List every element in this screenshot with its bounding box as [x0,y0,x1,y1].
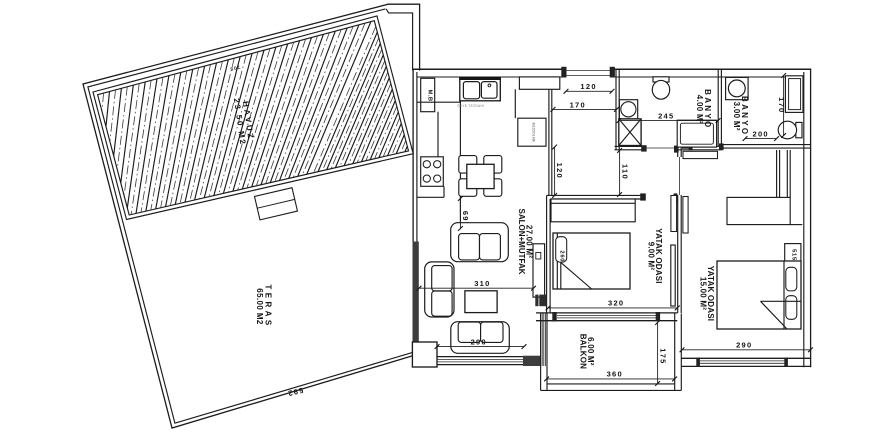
svg-text:EVYE TEZGAHI: EVYE TEZGAHI [458,104,485,108]
svg-text:M.B: M.B [427,90,433,102]
svg-text:200: 200 [752,129,768,138]
svg-text:175: 175 [658,348,667,364]
svg-text:SALON+MUTFAK: SALON+MUTFAK [517,209,526,275]
svg-text:260: 260 [558,250,564,262]
svg-text:515: 515 [790,249,796,261]
svg-text:290: 290 [471,337,487,346]
svg-text:27.00 M²: 27.00 M² [525,225,534,258]
svg-text:120: 120 [580,82,596,91]
svg-text:3.00 M²: 3.00 M² [732,102,741,131]
svg-text:BUZDOLABI: BUZDOLABI [532,123,536,143]
svg-text:4.00 M²: 4.00 M² [695,95,704,124]
svg-text:360: 360 [607,370,623,379]
svg-text:15.00 M²: 15.00 M² [698,277,707,310]
svg-text:6.00 M²: 6.00 M² [586,337,595,366]
svg-text:110: 110 [620,164,629,180]
svg-text:170: 170 [570,100,586,109]
svg-text:320: 320 [608,299,624,308]
svg-text:69: 69 [461,211,470,222]
svg-text:290: 290 [736,341,752,350]
svg-text:65.00 M2: 65.00 M2 [255,288,264,325]
svg-text:9.00 M²: 9.00 M² [646,242,655,271]
svg-text:120: 120 [555,163,564,179]
svg-text:170: 170 [777,97,786,113]
svg-text:310: 310 [474,279,490,288]
svg-text:BALKON: BALKON [578,334,587,369]
svg-text:245: 245 [658,111,674,120]
